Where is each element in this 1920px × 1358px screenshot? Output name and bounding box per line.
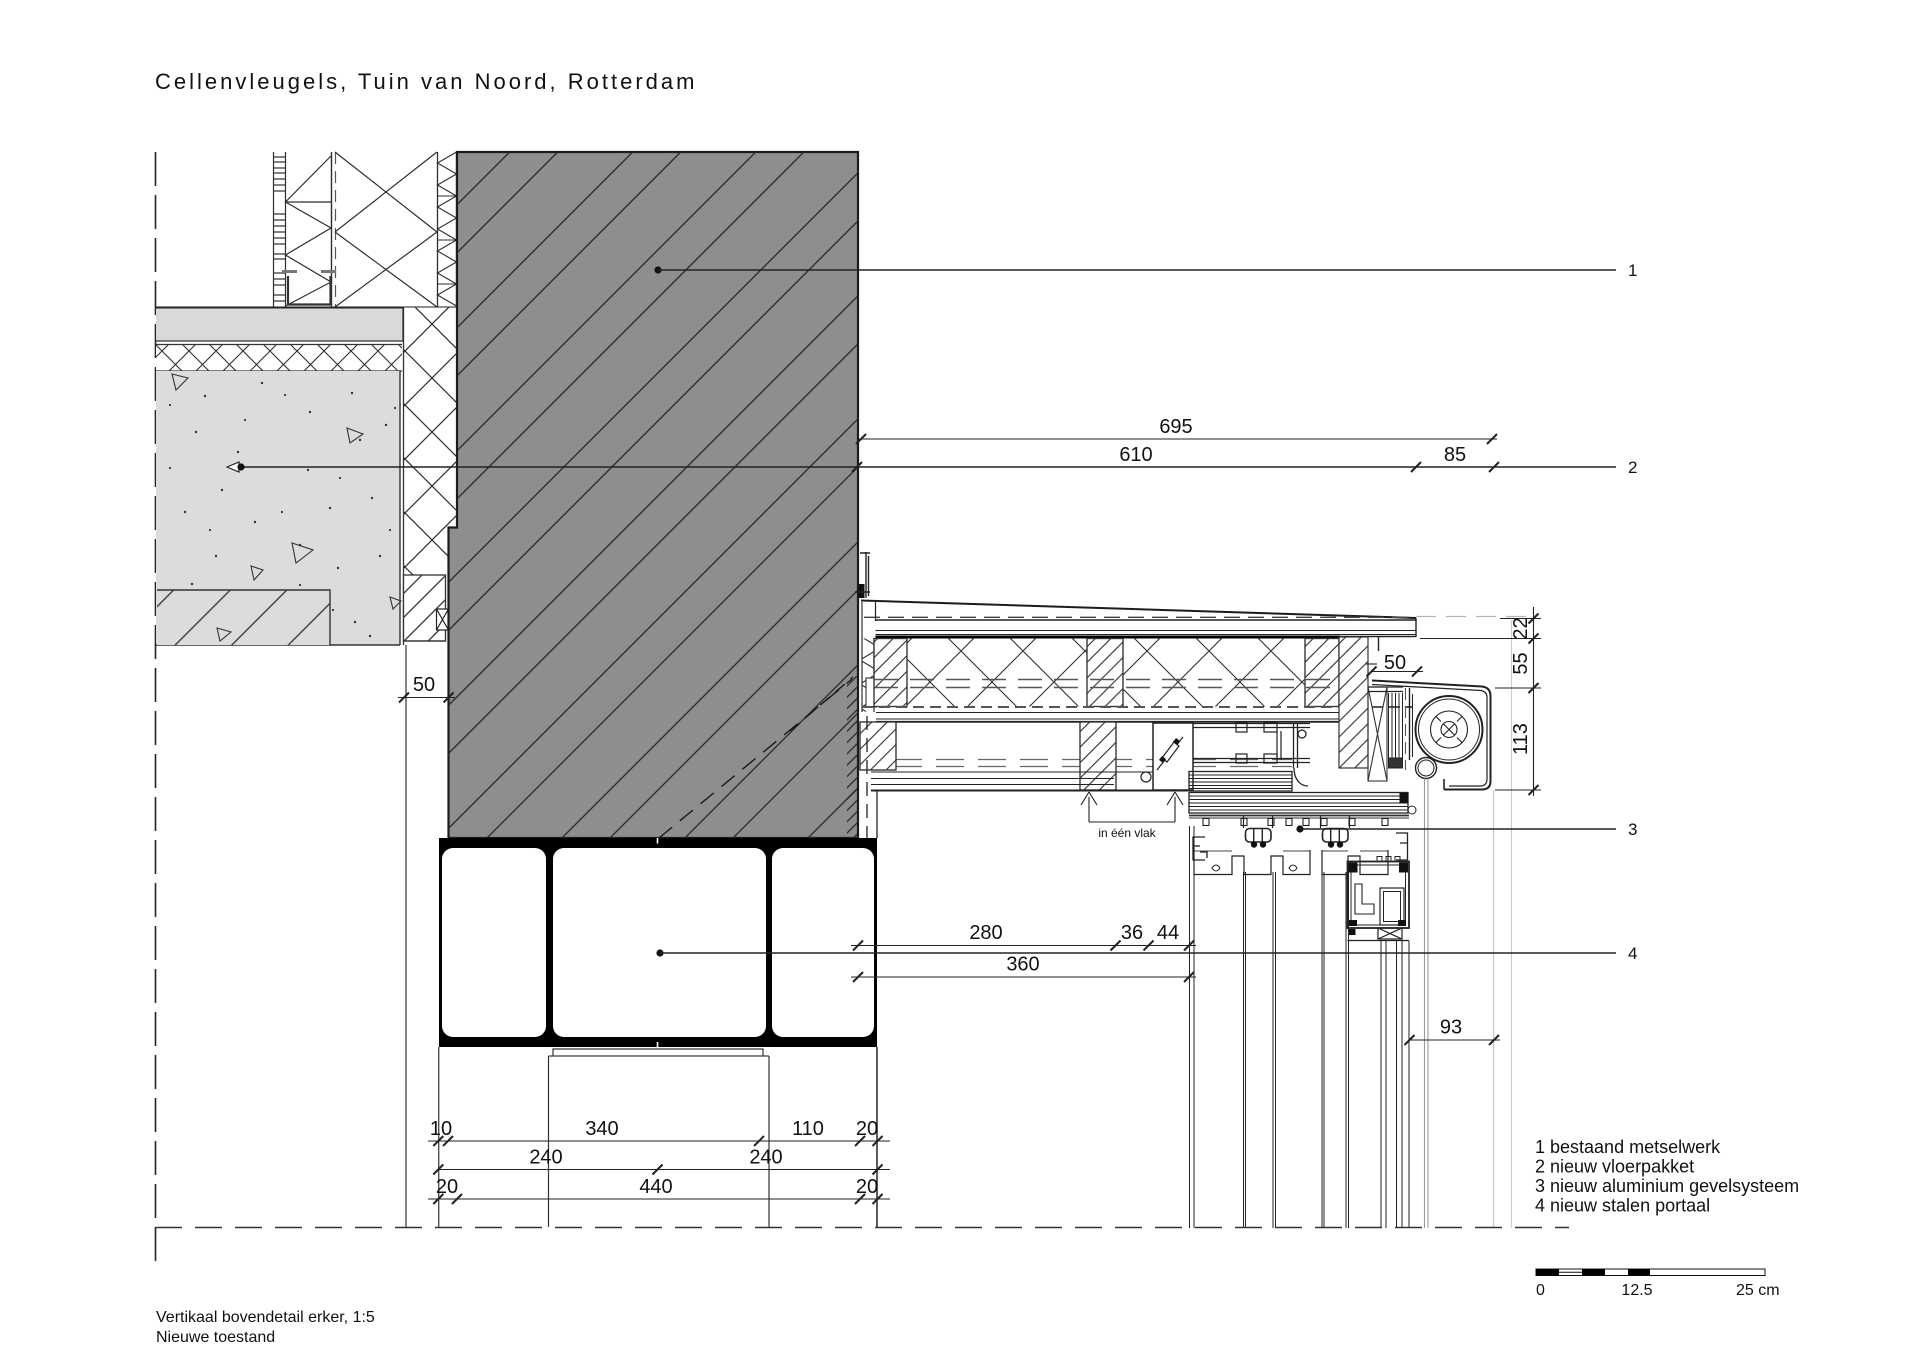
svg-text:610: 610	[1119, 444, 1152, 466]
svg-text:340: 340	[585, 1118, 618, 1140]
svg-text:3: 3	[1628, 820, 1637, 839]
svg-text:55: 55	[1510, 652, 1532, 674]
svg-text:Nieuwe toestand: Nieuwe toestand	[156, 1329, 275, 1346]
svg-text:20: 20	[856, 1118, 878, 1140]
svg-text:36: 36	[1121, 922, 1143, 944]
svg-text:1: 1	[1628, 261, 1637, 280]
svg-text:93: 93	[1440, 1017, 1462, 1039]
svg-text:4: 4	[1628, 944, 1637, 963]
svg-text:in één vlak: in één vlak	[1098, 826, 1156, 840]
svg-text:280: 280	[969, 922, 1002, 944]
svg-text:2: 2	[1628, 458, 1637, 477]
svg-text:0: 0	[1536, 1282, 1545, 1299]
svg-text:695: 695	[1159, 416, 1192, 438]
svg-text:Cellenvleugels, Tuin van Noord: Cellenvleugels, Tuin van Noord, Rotterda…	[155, 69, 697, 94]
svg-text:440: 440	[639, 1176, 672, 1198]
svg-text:25 cm: 25 cm	[1736, 1282, 1780, 1299]
svg-text:20: 20	[856, 1176, 878, 1198]
svg-text:1 bestaand metselwerk: 1 bestaand metselwerk	[1535, 1137, 1721, 1157]
svg-text:50: 50	[413, 674, 435, 696]
svg-text:3 nieuw aluminium gevelsysteem: 3 nieuw aluminium gevelsysteem	[1535, 1176, 1799, 1196]
svg-text:Vertikaal bovendetail erker, 1: Vertikaal bovendetail erker, 1:5	[156, 1309, 375, 1326]
svg-text:10: 10	[430, 1118, 452, 1140]
svg-text:85: 85	[1444, 444, 1466, 466]
svg-text:4 nieuw stalen portaal: 4 nieuw stalen portaal	[1535, 1196, 1710, 1216]
svg-text:110: 110	[792, 1118, 824, 1140]
svg-text:2 nieuw vloerpakket: 2 nieuw vloerpakket	[1535, 1157, 1694, 1177]
svg-text:113: 113	[1510, 723, 1532, 755]
svg-text:360: 360	[1006, 954, 1039, 976]
svg-text:240: 240	[529, 1147, 562, 1169]
svg-text:240: 240	[749, 1147, 782, 1169]
svg-text:50: 50	[1384, 652, 1406, 674]
svg-text:44: 44	[1157, 922, 1179, 944]
svg-text:20: 20	[436, 1176, 458, 1198]
svg-text:22: 22	[1510, 617, 1532, 639]
svg-text:12.5: 12.5	[1621, 1282, 1652, 1299]
